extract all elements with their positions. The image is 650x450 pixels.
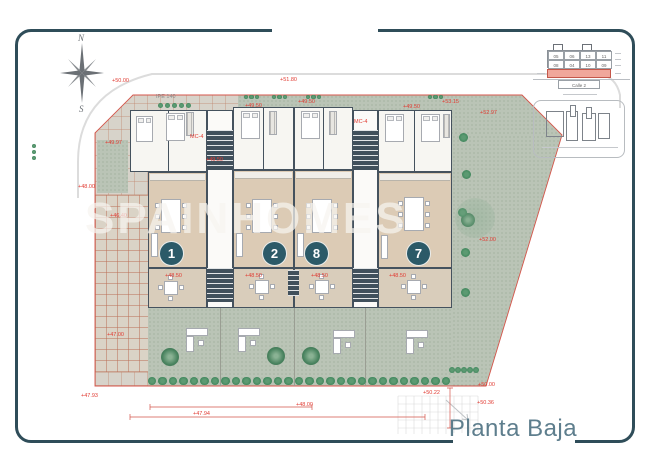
page-title: Planta Baja (447, 415, 579, 443)
key-plan-highlight-band (547, 69, 611, 78)
site-building-shaft (570, 105, 576, 117)
compass-south-label: S (79, 104, 84, 114)
site-building (546, 111, 564, 137)
key-plan-cell: 06 (564, 51, 580, 60)
key-plan-tick (615, 59, 621, 60)
key-plan-tick (537, 73, 545, 74)
key-plan-cell: 10 (580, 60, 596, 69)
key-plan-cell: 13 (580, 51, 596, 60)
key-plan-cell: 08 (548, 60, 564, 69)
key-plan-tick (563, 94, 597, 95)
site-building (598, 113, 610, 139)
compass-north-label: N (78, 33, 84, 43)
key-plan-tick (615, 53, 621, 54)
key-plan-tick (615, 65, 621, 66)
floor-plan-page: +50.00+51.80+53.15+52.97+49.50+49.50+49.… (0, 0, 650, 450)
key-plan-cell: 04 (564, 60, 580, 69)
site-sketch (533, 100, 625, 158)
key-plan-street-cell: Calle 2 (558, 80, 600, 89)
key-plan-tick (615, 73, 621, 74)
site-baseline (542, 147, 618, 148)
frame-top-gap (272, 25, 378, 36)
compass-rose-icon (60, 43, 104, 103)
key-plan-grid: 0506131108041009 (547, 50, 611, 68)
key-plan-inset: 0506131108041009 Calle 2 (533, 44, 630, 164)
site-building-shaft (586, 107, 592, 119)
key-plan-cell: 05 (548, 51, 564, 60)
key-plan-cell: 09 (596, 60, 612, 69)
key-plan-cell: 11 (596, 51, 612, 60)
